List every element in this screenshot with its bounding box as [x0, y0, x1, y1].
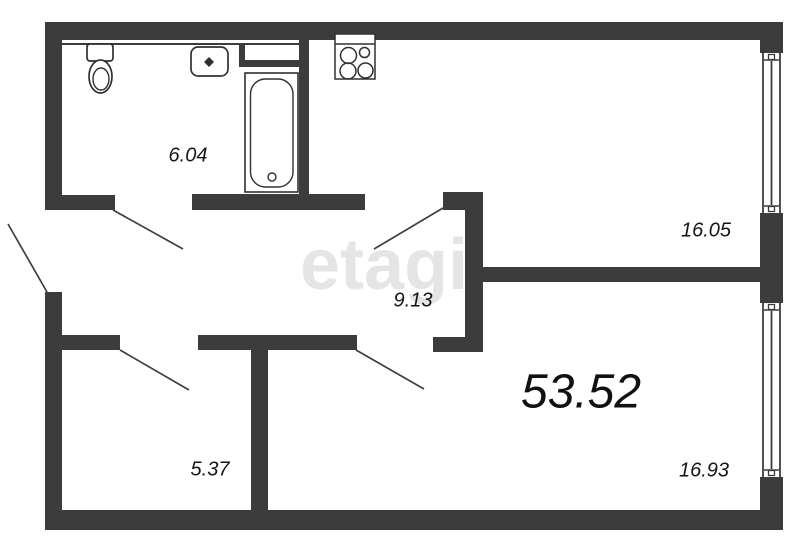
door-swing-line-bedroom	[356, 350, 424, 389]
bathtub-icon	[245, 73, 298, 192]
window-icon	[763, 53, 780, 213]
toilet-bowl-inner	[93, 68, 109, 90]
door-swing-line-entrance	[8, 224, 47, 292]
door-swing-line-storage	[120, 350, 189, 390]
floor-plan: etagi 6.04 16.05 9.13 5.37 16.93 53.52	[0, 0, 800, 550]
window-bracket	[769, 305, 775, 310]
window-bracket	[769, 207, 775, 212]
toilet-tank	[87, 44, 113, 61]
room-area-label-storage: 5.37	[191, 459, 230, 482]
total-area-label: 53.52	[521, 365, 641, 420]
stove-icon	[335, 34, 375, 79]
sink-icon	[191, 47, 228, 76]
toilet-icon	[87, 44, 113, 93]
door-swing-line-bathroom	[113, 210, 183, 249]
window-icon	[763, 303, 780, 477]
window-bracket	[769, 55, 775, 60]
bathtub-drain	[268, 173, 276, 181]
bathtub-inner	[251, 79, 294, 187]
room-area-label-bathroom: 6.04	[169, 145, 208, 168]
room-area-label-kitchen: 16.05	[681, 220, 731, 243]
room-area-label-hallway: 9.13	[394, 290, 433, 313]
watermark: etagi	[300, 229, 468, 301]
window-bracket	[769, 471, 775, 476]
room-area-label-bedroom: 16.93	[679, 460, 729, 483]
